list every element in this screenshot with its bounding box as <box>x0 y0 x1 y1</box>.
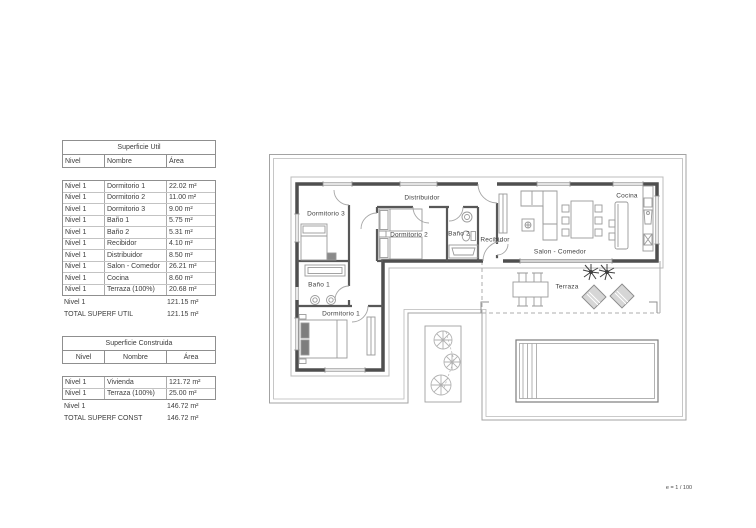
scale-annotation: e = 1 / 100 <box>666 485 692 491</box>
room-label-recibidor: Recibidor <box>480 237 509 244</box>
room-label-salon-comedor: Salon - Comedor <box>534 249 586 256</box>
room-label-dormitorio-1: Dormitorio 1 <box>322 311 360 318</box>
tree-symbols <box>431 331 460 395</box>
room-label-bano-1: Baño 1 <box>308 282 330 289</box>
lounge-chairs <box>582 284 634 309</box>
planter <box>425 326 461 402</box>
terrace-plants <box>583 264 615 280</box>
floor-plan <box>0 0 756 528</box>
swimming-pool <box>516 340 658 402</box>
room-label-cocina: Cocina <box>616 193 637 200</box>
plan-sheet: { "page": { "scale_label": "e = 1 / 100"… <box>0 0 756 528</box>
room-label-dormitorio-3: Dormitorio 3 <box>307 211 345 218</box>
pool-steps <box>523 344 537 399</box>
room-label-terraza: Terraza <box>555 284 578 291</box>
terrace-table-set <box>513 273 548 306</box>
room-label-bano-2: Baño 2 <box>448 231 470 238</box>
house-walls <box>297 184 657 370</box>
room-label-distribuidor: Distribuidor <box>404 195 439 202</box>
room-label-dormitorio-2: Dormitorio 2 <box>390 232 428 239</box>
